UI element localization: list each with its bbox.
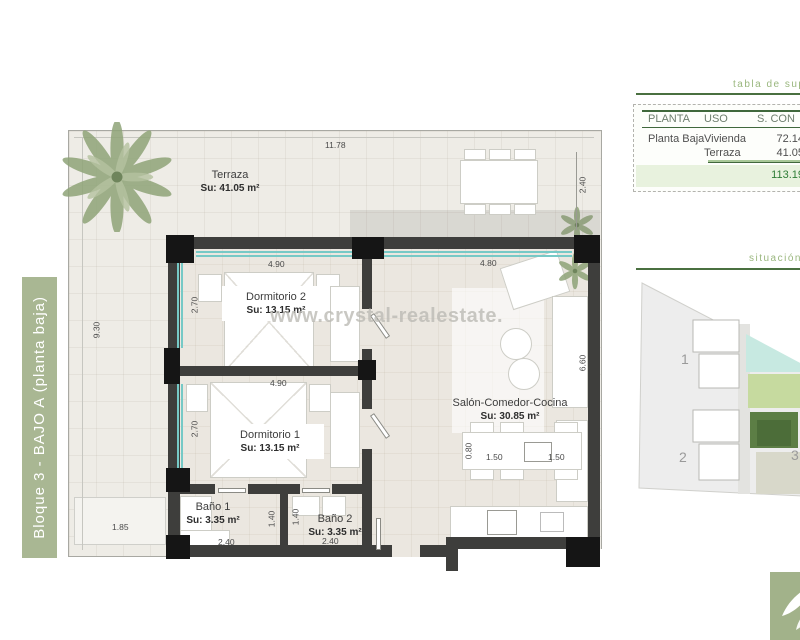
dim-terrace-left: 9.30 (91, 322, 101, 339)
cooktop (487, 510, 517, 535)
outdoor-chair (514, 149, 536, 160)
wall-segment (168, 237, 600, 249)
column (352, 237, 384, 259)
window-glazing (384, 251, 572, 253)
wall-segment (280, 490, 288, 550)
dim-salon-right: 6.60 (577, 355, 587, 372)
kitchen-counter (450, 506, 588, 538)
side-table (500, 328, 532, 360)
divider-rule (636, 93, 800, 95)
col-header-planta: PLANTA (648, 113, 690, 125)
window-glazing (196, 255, 352, 257)
outdoor-chair (489, 149, 511, 160)
side-table (508, 358, 540, 390)
floor-plan-page: Terraza Su: 41.05 m² Dormitorio 2 Su: 13… (0, 0, 800, 640)
room-name: Baño 2 (300, 512, 370, 526)
site-pool (746, 334, 800, 372)
site-block3-number: 3 (791, 447, 799, 463)
room-name: Baño 1 (178, 500, 248, 514)
col-header-uso: USO (704, 113, 728, 125)
plan-title: Bloque 3 - BAJO A (planta baja) (31, 296, 48, 539)
window-glazing (384, 255, 572, 257)
room-label-salon: Salón-Comedor-Cocina Su: 30.85 m² (425, 396, 595, 423)
room-area: Su: 13.15 m² (224, 442, 316, 455)
outdoor-chair (514, 204, 536, 215)
dim-dining-w2: 1.50 (548, 452, 565, 462)
room-name: Dormitorio 1 (224, 428, 316, 442)
sofa (552, 296, 588, 408)
dim-bano2-depth: 1.40 (290, 509, 300, 526)
column (166, 468, 190, 492)
site-block1-number: 1 (681, 351, 689, 367)
door-leaf (218, 488, 246, 493)
wall-segment (248, 484, 300, 494)
room-label-terraza: Terraza Su: 41.05 m² (180, 168, 280, 195)
dining-chair (554, 422, 578, 433)
column (574, 235, 600, 263)
dim-salon-top: 4.80 (480, 258, 497, 268)
dining-chair (500, 422, 524, 433)
outdoor-chair (464, 149, 486, 160)
location-plan-title: situación p (749, 253, 800, 264)
total-rule (708, 162, 800, 163)
wall-segment (588, 237, 600, 549)
window-glazing (181, 384, 183, 468)
wall-segment (332, 484, 372, 494)
cell-superficie: 72.14 (744, 133, 800, 145)
dining-table (462, 432, 582, 470)
leaf-logo-icon (770, 572, 800, 640)
dim-terrace-top: 11.78 (325, 140, 346, 150)
col-header-superficie: S. CON (757, 113, 795, 125)
plan-title-banner: Bloque 3 - BAJO A (planta baja) (22, 277, 57, 558)
room-name: Dormitorio 2 (230, 290, 322, 304)
column (358, 360, 376, 380)
surfaces-table: PLANTA USO S. CON Planta Baja Vivienda 7… (633, 104, 800, 192)
terrace-step (74, 497, 166, 545)
nightstand (198, 274, 222, 302)
agency-logo (770, 572, 800, 640)
outdoor-table (460, 160, 538, 204)
room-area: Su: 3.35 m² (178, 514, 248, 527)
cell-superficie: 41.05 (744, 147, 800, 159)
site-lawn (748, 374, 800, 408)
dim-bano1-depth: 1.40 (266, 511, 276, 528)
table-rule (642, 127, 800, 128)
dim-dorm1-width: 4.90 (270, 378, 287, 388)
door-leaf (302, 488, 330, 493)
table-rule (642, 110, 800, 112)
window-glazing (181, 263, 183, 348)
surfaces-table-title: tabla de sup (733, 79, 800, 90)
window-glazing (177, 384, 179, 468)
room-area: Su: 3.35 m² (300, 526, 370, 539)
palm-tree-icon (62, 122, 172, 232)
cell-planta: Planta Baja (648, 133, 704, 145)
dim-dining-w1: 1.50 (486, 452, 503, 462)
column (566, 537, 600, 567)
site-block2-number: 2 (679, 449, 687, 465)
column (164, 348, 180, 384)
dim-dorm2-width: 4.90 (268, 259, 285, 269)
outdoor-chair (489, 204, 511, 215)
room-label-dormitorio1: Dormitorio 1 Su: 13.15 m² (216, 424, 324, 459)
room-area: Su: 30.85 m² (425, 410, 595, 423)
nightstand (186, 384, 208, 412)
door-leaf (376, 518, 381, 550)
site-plan: 1 2 3 (633, 282, 800, 522)
cell-uso: Vivienda (704, 133, 746, 145)
column (166, 535, 190, 559)
dim-terrace-bottom: 1.85 (112, 522, 129, 532)
wardrobe (330, 392, 360, 468)
divider-rule (636, 268, 800, 270)
window-glazing (196, 251, 352, 253)
cell-uso: Terraza (704, 147, 741, 159)
outdoor-chair (464, 204, 486, 215)
room-name: Terraza (180, 168, 280, 182)
window-glazing (177, 263, 179, 348)
room-label-bano1: Baño 1 Su: 3.35 m² (178, 500, 248, 527)
sink (540, 512, 564, 532)
column (166, 235, 194, 263)
dining-chair (500, 469, 524, 480)
dining-chair (470, 469, 494, 480)
room-label-bano2: Baño 2 Su: 3.35 m² (300, 512, 370, 539)
dim-dining-depth: 0.80 (463, 443, 473, 460)
room-area: Su: 41.05 m² (180, 182, 280, 195)
wall-segment (176, 366, 372, 376)
nightstand (309, 384, 331, 412)
dim-bano1-width: 2.40 (218, 537, 235, 547)
dim-dorm1-depth: 2.70 (189, 421, 199, 438)
dining-chair (554, 469, 578, 480)
site-block-highlighted-inner (757, 420, 791, 446)
total-superficie: 113.19 (744, 169, 800, 181)
room-name: Salón-Comedor-Cocina (425, 396, 595, 410)
watermark: www.crystal-realestate. (270, 305, 503, 328)
dim-dorm2-depth: 2.70 (189, 297, 199, 314)
dim-terrace-right: 2.40 (577, 177, 587, 194)
dining-chair (470, 422, 494, 433)
